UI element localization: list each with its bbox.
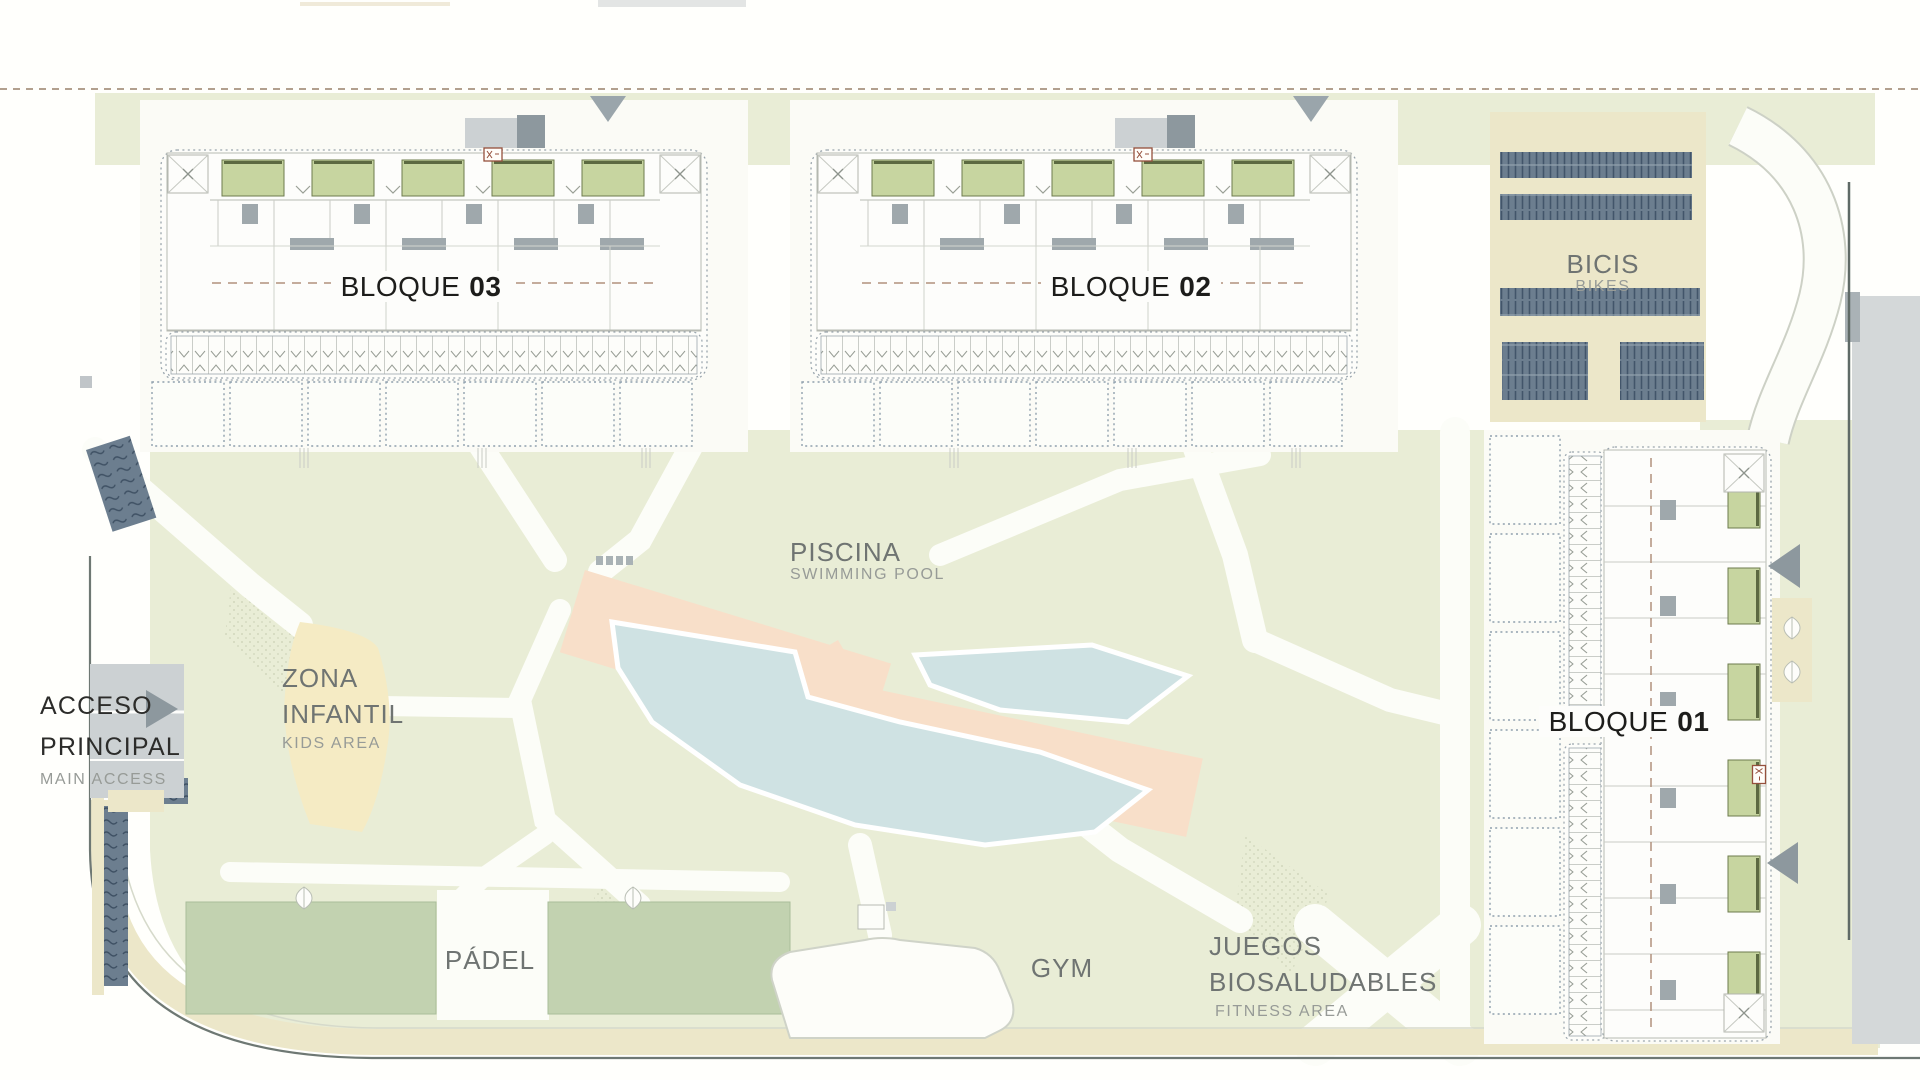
bike-rack	[1502, 342, 1588, 400]
access-label-en: MAIN ACCESS	[40, 771, 181, 789]
access-label-es-line2: PRINCIPAL	[40, 727, 181, 768]
kids-label-es-line2: INFANTIL	[282, 696, 404, 732]
label-bloque-03-bg: BLOQUE03	[331, 271, 512, 302]
fitness-label-es-line2: BIOSALUDABLES	[1209, 964, 1437, 1000]
label-bloque-01: BLOQUE01	[1494, 706, 1764, 738]
block-name: BLOQUE	[1549, 706, 1669, 737]
padel-label-es: PÁDEL	[420, 942, 560, 978]
padel-court	[186, 902, 436, 1014]
label-padel: PÁDEL	[420, 942, 560, 978]
site-plan-drawing	[0, 0, 1920, 1080]
label-kids-area: ZONA INFANTIL KIDS AREA	[282, 660, 404, 753]
block-name: BLOQUE	[1051, 271, 1171, 302]
block-name: BLOQUE	[341, 271, 461, 302]
bike-rack	[1620, 342, 1704, 400]
kids-label-en: KIDS AREA	[282, 735, 404, 753]
label-gym: GYM	[1012, 950, 1112, 986]
label-bloque-03: BLOQUE03	[286, 271, 556, 303]
pool-label-en: SWIMMING POOL	[790, 566, 945, 584]
label-bloque-01-bg: BLOQUE01	[1539, 706, 1720, 737]
pool-label-es: PISCINA	[790, 534, 945, 570]
fitness-label-es-line1: JUEGOS	[1209, 928, 1437, 964]
padel-court	[548, 902, 790, 1014]
label-pool: PISCINA SWIMMING POOL	[790, 534, 945, 584]
label-bikes: BICIS BIKES	[1528, 246, 1678, 296]
block-number: 02	[1179, 271, 1211, 302]
access-label-es-line1: ACCESO	[40, 686, 181, 727]
bike-rack	[1500, 152, 1692, 178]
label-main-access: ACCESO PRINCIPAL MAIN ACCESS	[40, 686, 181, 789]
gym-pad	[771, 938, 1013, 1038]
bikes-label-en: BIKES	[1528, 278, 1678, 296]
gym-label-es: GYM	[1012, 950, 1112, 986]
block-number: 01	[1677, 706, 1709, 737]
block-number: 03	[469, 271, 501, 302]
label-bloque-02-bg: BLOQUE02	[1041, 271, 1222, 302]
label-bloque-02: BLOQUE02	[996, 271, 1266, 303]
fitness-label-en: FITNESS AREA	[1215, 1003, 1437, 1021]
kids-label-es-line1: ZONA	[282, 660, 404, 696]
east-planting	[1772, 598, 1812, 702]
label-fitness-area: JUEGOS BIOSALUDABLES FITNESS AREA	[1209, 928, 1437, 1021]
top-edge-fragments	[300, 0, 746, 7]
bikes-label-es: BICIS	[1528, 246, 1678, 282]
bike-rack	[1500, 194, 1692, 220]
site-plan: BLOQUE03 BLOQUE02 BLOQUE01 BICIS BIKES P…	[0, 0, 1920, 1080]
